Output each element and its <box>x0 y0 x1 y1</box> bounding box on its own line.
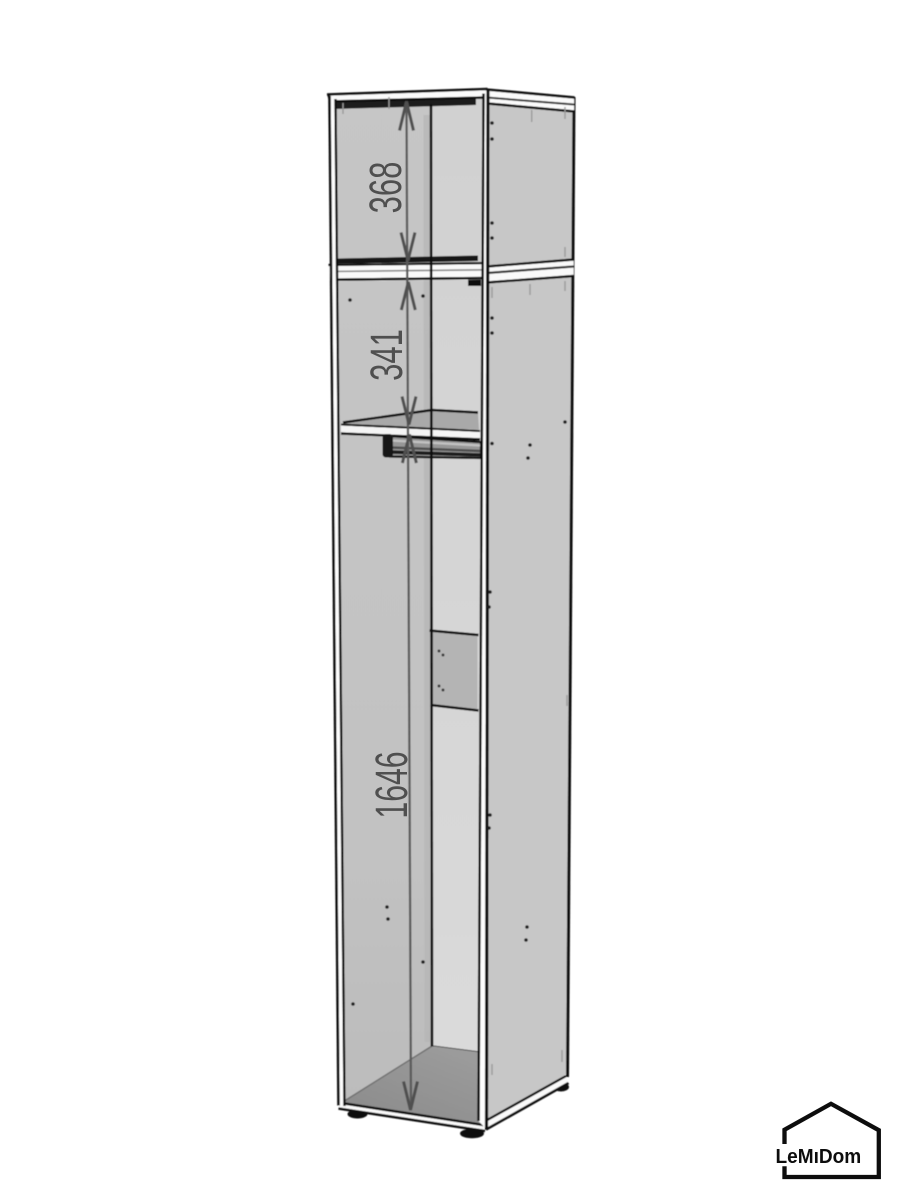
svg-text:LeMıDom: LeMıDom <box>776 1145 862 1168</box>
svg-text:341: 341 <box>362 329 412 381</box>
svg-text:368: 368 <box>361 162 411 214</box>
svg-text:1646: 1646 <box>367 751 418 818</box>
